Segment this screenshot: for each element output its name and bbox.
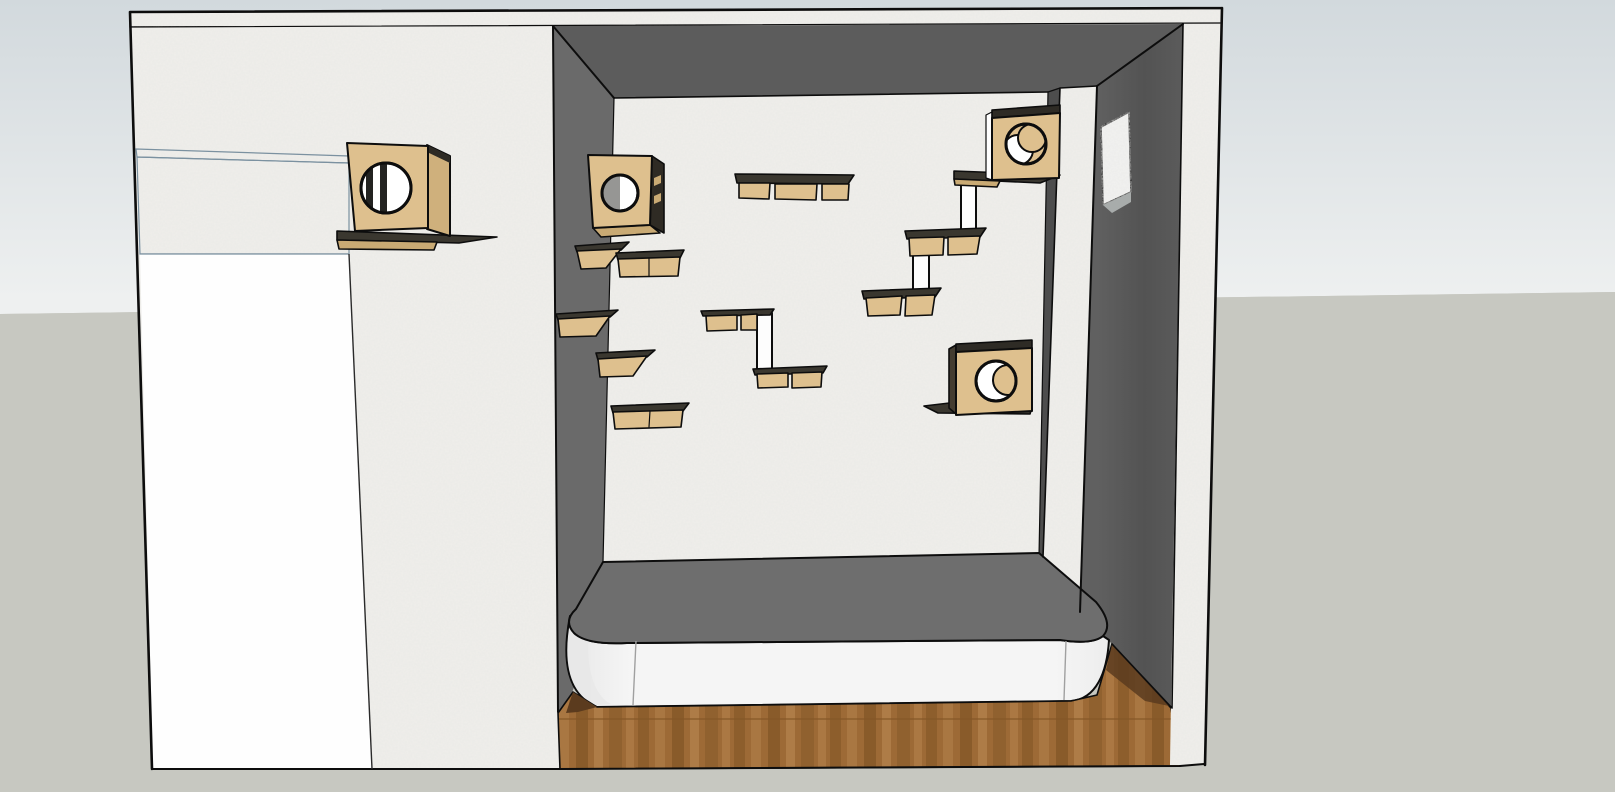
cat-step-mid-face bbox=[948, 236, 980, 255]
model-viewport[interactable] bbox=[0, 0, 1615, 792]
cat-step-low-face bbox=[905, 295, 935, 316]
cat-shelf-triple-face bbox=[739, 183, 770, 199]
cat-shelf-face bbox=[613, 410, 683, 429]
support-post bbox=[961, 179, 976, 236]
alcove-back-wall bbox=[603, 92, 1048, 562]
cat-step-upper-face bbox=[706, 315, 737, 331]
cat-box-3 bbox=[986, 105, 1060, 180]
bed-platform-top bbox=[569, 553, 1107, 643]
cat-shelf-triple bbox=[735, 174, 854, 200]
cat-step-low-face bbox=[866, 296, 902, 316]
cat-shelf-under-box-1-edge bbox=[337, 240, 437, 250]
cat-shelf-triple-face bbox=[775, 184, 817, 200]
cat-step-lower-face bbox=[757, 373, 788, 388]
cat-box-2 bbox=[588, 155, 664, 237]
cat-box-1-hole-divider bbox=[373, 163, 380, 214]
cat-step-upper-face bbox=[741, 314, 757, 330]
support-post bbox=[757, 313, 772, 370]
scene-canvas bbox=[0, 0, 1615, 792]
right-wall-opening bbox=[1101, 112, 1131, 205]
cat-shelf-triple-face bbox=[822, 184, 849, 200]
cat-step-mid-face bbox=[909, 237, 944, 256]
cat-step-lower-face bbox=[792, 372, 822, 388]
white-door-panel bbox=[140, 254, 372, 769]
cat-box-4-side bbox=[949, 345, 956, 414]
